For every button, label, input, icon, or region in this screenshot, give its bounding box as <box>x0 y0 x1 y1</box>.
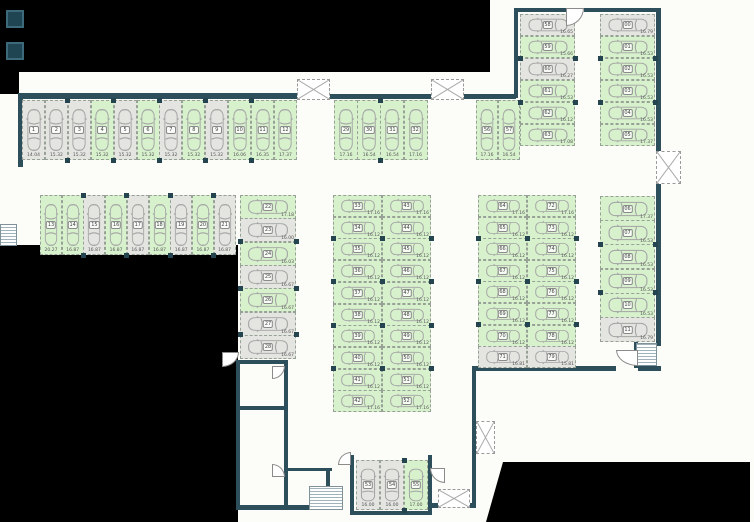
stall-dimension: 16.54 <box>358 153 380 158</box>
stall-number: 13 <box>46 221 56 229</box>
stall-dimension: 16.06 <box>229 153 250 158</box>
parking-stall-74[interactable]: 7416.12 <box>527 238 576 260</box>
ventilation-shaft-icon <box>431 79 464 100</box>
parking-stall-65[interactable]: 6516.12 <box>478 217 527 239</box>
stall-number: 52 <box>401 397 411 405</box>
stall-number: 3 <box>74 126 84 134</box>
column-marker <box>653 56 658 61</box>
parking-stall-49[interactable]: 4916.12 <box>382 325 431 347</box>
parking-stall-27[interactable]: 2716.67 <box>240 312 296 336</box>
column-marker <box>598 290 603 295</box>
stall-number: 75 <box>546 267 556 275</box>
parking-stall-01[interactable]: 0116.53 <box>600 36 655 58</box>
stall-number: 45 <box>401 245 411 253</box>
stall-dimension: 16.12 <box>416 298 429 303</box>
stall-number: 46 <box>401 267 411 275</box>
column-marker <box>203 158 208 163</box>
stall-number: 2 <box>51 126 61 134</box>
parking-stall-23[interactable]: 2316.00 <box>240 218 296 242</box>
parking-stall-08[interactable]: 0816.53 <box>600 244 655 269</box>
stall-number: 07 <box>622 229 632 237</box>
stall-dimension: 16.12 <box>561 341 574 346</box>
column-marker <box>380 279 385 284</box>
parking-stall-52[interactable]: 5217.16 <box>382 390 431 412</box>
stall-number: 43 <box>401 202 411 210</box>
parking-stall-25[interactable]: 2516.67 <box>240 265 296 289</box>
door-swing-icon <box>566 8 584 26</box>
parking-stall-07[interactable]: 0716.53 <box>600 220 655 245</box>
column-marker <box>157 98 162 103</box>
wall <box>584 8 661 12</box>
door-swing-icon <box>338 452 351 465</box>
stall-number: 67 <box>497 267 507 275</box>
stall-dimension: 17.16 <box>416 211 429 216</box>
parking-stall-71[interactable]: 7116.81 <box>478 346 527 368</box>
stall-dimension: 16.87 <box>63 248 83 253</box>
parking-stall-60[interactable]: 6016.27 <box>520 58 575 80</box>
stall-number: 62 <box>542 109 552 117</box>
wall <box>236 360 240 510</box>
stall-dimension: 16.53 <box>640 288 653 293</box>
column-marker <box>380 366 385 371</box>
stall-number: 56 <box>482 126 492 134</box>
stall-number: 35 <box>352 245 362 253</box>
stall-dimension: 15.32 <box>206 153 227 158</box>
stall-dimension: 15.32 <box>69 153 90 158</box>
stall-dimension: 17.37 <box>640 140 653 145</box>
stall-number: 10 <box>234 126 244 134</box>
column-marker <box>168 253 173 258</box>
column-marker <box>294 332 299 337</box>
stall-number: 40 <box>352 354 362 362</box>
column-marker <box>402 458 407 463</box>
stall-dimension: 16.12 <box>512 319 525 324</box>
parking-stall-03[interactable]: 0316.53 <box>600 80 655 102</box>
stall-dimension: 15.32 <box>115 153 136 158</box>
parking-stall-50[interactable]: 5016.12 <box>382 347 431 369</box>
stall-number: 79 <box>546 353 556 361</box>
stall-number: 6 <box>143 126 153 134</box>
stall-dimension: 16.00 <box>357 503 379 508</box>
stall-dimension: 17.37 <box>275 153 296 158</box>
column-marker <box>111 158 116 163</box>
column-marker <box>238 286 243 291</box>
stall-number: 24 <box>263 250 273 258</box>
stall-dimension: 17.37 <box>640 215 653 220</box>
parking-stall-59[interactable]: 5915.66 <box>520 36 575 58</box>
parking-stall-61[interactable]: 6116.53 <box>520 80 575 102</box>
stall-dimension: 16.53 <box>640 263 653 268</box>
stall-dimension: 17.16 <box>335 153 357 158</box>
stall-number: 18 <box>154 221 164 229</box>
stall-number: 05 <box>622 131 632 139</box>
column-marker <box>653 290 658 295</box>
stall-number: 48 <box>401 311 411 319</box>
stall-number: 06 <box>622 205 632 213</box>
stall-number: 54 <box>387 481 397 489</box>
column-marker <box>598 100 603 105</box>
stall-dimension: 16.87 <box>84 248 104 253</box>
stairs-icon <box>0 224 17 246</box>
stall-number: 26 <box>263 296 273 304</box>
stall-number: 31 <box>387 126 397 134</box>
parking-stall-21[interactable]: 2116.87 <box>214 195 236 255</box>
parking-stall-67[interactable]: 6716.12 <box>478 260 527 282</box>
column-marker <box>168 193 173 198</box>
wall <box>514 8 566 12</box>
stall-number: 47 <box>401 289 411 297</box>
outside-area-mask <box>0 245 238 522</box>
parking-stall-35[interactable]: 3516.12 <box>333 238 382 260</box>
stall-dimension: 16.12 <box>416 320 429 325</box>
column-marker <box>598 56 603 61</box>
parking-stall-72[interactable]: 7217.16 <box>527 195 576 217</box>
parking-stall-41[interactable]: 4116.12 <box>333 369 382 391</box>
parking-stall-44[interactable]: 4416.12 <box>382 217 431 239</box>
stall-dimension: 16.12 <box>561 233 574 238</box>
wall <box>464 94 516 99</box>
stall-dimension: 16.87 <box>171 248 191 253</box>
parking-stall-62[interactable]: 6216.12 <box>520 102 575 124</box>
parking-stall-05[interactable]: 0517.37 <box>600 124 655 146</box>
column-marker <box>380 323 385 328</box>
wall <box>638 366 661 371</box>
parking-stall-39[interactable]: 3916.12 <box>333 325 382 347</box>
stall-dimension: 16.53 <box>640 239 653 244</box>
parking-stall-64[interactable]: 6417.16 <box>478 195 527 217</box>
stall-number: 12 <box>280 126 290 134</box>
column-marker <box>476 236 481 241</box>
stall-number: 9 <box>212 126 222 134</box>
stall-number: 14 <box>68 221 78 229</box>
stall-dimension: 16.67 <box>281 353 294 358</box>
stall-number: 69 <box>497 310 507 318</box>
stall-number: 60 <box>542 65 552 73</box>
column-marker <box>574 279 579 284</box>
stall-number: 5 <box>120 126 130 134</box>
column-marker <box>573 56 578 61</box>
outside-area-mask <box>486 462 750 522</box>
stall-dimension: 16.12 <box>367 233 380 238</box>
parking-stall-51[interactable]: 5116.12 <box>382 369 431 391</box>
column-marker <box>157 158 162 163</box>
stall-dimension: 16.12 <box>416 363 429 368</box>
stall-dimension: 17.16 <box>405 153 427 158</box>
stall-number: 53 <box>363 481 373 489</box>
parking-stall-48[interactable]: 4816.12 <box>382 304 431 326</box>
stall-number: 58 <box>542 21 552 29</box>
parking-stall-02[interactable]: 0216.53 <box>600 58 655 80</box>
parking-stall-10[interactable]: 1016.53 <box>600 293 655 318</box>
stall-dimension: 16.53 <box>640 96 653 101</box>
ventilation-shaft-icon <box>656 151 681 184</box>
column-marker <box>65 98 70 103</box>
column-marker <box>331 236 336 241</box>
stall-dimension: 16.12 <box>416 276 429 281</box>
stall-dimension: 16.12 <box>367 341 380 346</box>
stall-number: 22 <box>263 203 273 211</box>
parking-stall-79[interactable]: 7915.81 <box>527 346 576 368</box>
stall-number: 70 <box>497 332 507 340</box>
stall-number: 63 <box>542 131 552 139</box>
stall-number: 27 <box>263 320 273 328</box>
parking-stall-33[interactable]: 3317.16 <box>333 195 382 217</box>
stall-dimension: 16.12 <box>416 341 429 346</box>
stall-number: 59 <box>542 43 552 51</box>
parking-stall-77[interactable]: 7716.12 <box>527 303 576 325</box>
ventilation-shaft-icon <box>297 79 330 100</box>
parking-stall-42[interactable]: 4217.16 <box>333 390 382 412</box>
shaft-marker-icon <box>6 10 24 28</box>
stall-number: 76 <box>546 288 556 296</box>
stall-dimension: 16.12 <box>416 254 429 259</box>
column-marker <box>211 253 216 258</box>
stall-dimension: 16.12 <box>512 341 525 346</box>
stall-dimension: 16.87 <box>193 248 213 253</box>
stall-dimension: 15.32 <box>160 153 181 158</box>
stall-dimension: 16.67 <box>281 306 294 311</box>
parking-stall-04[interactable]: 0416.53 <box>600 102 655 124</box>
wall <box>236 406 288 410</box>
column-marker <box>653 242 658 247</box>
parking-stall-11[interactable]: 1116.79 <box>600 317 655 342</box>
stall-number: 39 <box>352 332 362 340</box>
stall-dimension: 16.54 <box>381 153 403 158</box>
parking-stall-28[interactable]: 2816.67 <box>240 335 296 359</box>
parking-stall-34[interactable]: 3416.12 <box>333 217 382 239</box>
stall-dimension: 16.12 <box>367 298 380 303</box>
stall-number: 65 <box>497 224 507 232</box>
column-marker <box>378 98 383 103</box>
parking-stall-32[interactable]: 3217.16 <box>404 100 428 160</box>
column-marker <box>111 98 116 103</box>
stall-number: 57 <box>504 126 514 134</box>
column-marker <box>653 100 658 105</box>
stall-number: 77 <box>546 310 556 318</box>
stall-number: 08 <box>622 253 632 261</box>
parking-stall-40[interactable]: 4016.12 <box>333 347 382 369</box>
parking-stall-12[interactable]: 1217.37 <box>274 100 297 160</box>
parking-stall-36[interactable]: 3616.12 <box>333 260 382 282</box>
stall-number: 55 <box>411 481 421 489</box>
stall-number: 49 <box>401 332 411 340</box>
stall-number: 30 <box>364 126 374 134</box>
stall-dimension: 17.16 <box>367 406 380 411</box>
stall-dimension: 16.12 <box>512 297 525 302</box>
stall-number: 71 <box>497 353 507 361</box>
stall-number: 42 <box>352 397 362 405</box>
stall-dimension: 16.12 <box>367 320 380 325</box>
wall <box>284 360 288 510</box>
stall-number: 15 <box>89 221 99 229</box>
stall-number: 04 <box>622 109 632 117</box>
stall-dimension: 16.79 <box>640 30 653 35</box>
stall-dimension: 16.54 <box>499 153 519 158</box>
stall-dimension: 16.00 <box>381 503 403 508</box>
parking-stall-68[interactable]: 6816.12 <box>478 281 527 303</box>
stall-number: 21 <box>219 221 229 229</box>
stall-dimension: 17.16 <box>367 211 380 216</box>
stairs-icon <box>309 486 343 510</box>
stall-dimension: 16.12 <box>512 233 525 238</box>
parking-stall-47[interactable]: 4716.12 <box>382 282 431 304</box>
column-marker <box>525 236 530 241</box>
parking-stall-57[interactable]: 5716.54 <box>498 100 520 160</box>
stall-number: 36 <box>352 267 362 275</box>
ventilation-shaft-icon <box>476 421 495 454</box>
parking-stall-75[interactable]: 7516.12 <box>527 260 576 282</box>
parking-stall-76[interactable]: 7616.12 <box>527 281 576 303</box>
parking-stall-66[interactable]: 6616.12 <box>478 238 527 260</box>
stall-dimension: 15.32 <box>92 153 113 158</box>
stall-dimension: 16.53 <box>640 118 653 123</box>
stall-dimension: 17.16 <box>477 153 497 158</box>
stall-dimension: 16.12 <box>367 254 380 259</box>
stall-number: 74 <box>546 245 556 253</box>
wall <box>656 8 661 154</box>
outside-area-mask <box>0 0 490 72</box>
stall-number: 33 <box>352 202 362 210</box>
door-swing-icon <box>616 350 638 366</box>
stall-number: 23 <box>263 226 273 234</box>
stall-dimension: 16.53 <box>560 96 573 101</box>
parking-stall-45[interactable]: 4516.12 <box>382 238 431 260</box>
column-marker <box>331 366 336 371</box>
stall-dimension: 16.67 <box>281 283 294 288</box>
parking-stall-37[interactable]: 3716.12 <box>333 282 382 304</box>
ventilation-shaft-icon <box>438 489 470 508</box>
stall-number: 8 <box>189 126 199 134</box>
stall-dimension: 16.67 <box>281 330 294 335</box>
stall-number: 28 <box>263 343 273 351</box>
stairs-icon <box>636 343 657 366</box>
column-marker <box>525 322 530 327</box>
column-marker <box>211 193 216 198</box>
stall-dimension: 16.12 <box>512 276 525 281</box>
stall-number: 38 <box>352 311 362 319</box>
parking-stall-06[interactable]: 0617.37 <box>600 196 655 221</box>
stall-dimension: 16.53 <box>640 312 653 317</box>
stall-dimension: 17.18 <box>281 213 294 218</box>
parking-stall-78[interactable]: 7816.12 <box>527 325 576 347</box>
stall-dimension: 16.12 <box>561 254 574 259</box>
stall-dimension: 16.53 <box>640 74 653 79</box>
stall-dimension: 14.04 <box>23 153 44 158</box>
stall-dimension: 16.12 <box>367 385 380 390</box>
parking-stall-24[interactable]: 2416.03 <box>240 242 296 266</box>
column-marker <box>124 253 129 258</box>
parking-stall-46[interactable]: 4616.12 <box>382 260 431 282</box>
stall-number: 25 <box>263 273 273 281</box>
stall-number: 7 <box>166 126 176 134</box>
stall-dimension: 16.12 <box>561 276 574 281</box>
parking-floor-plan: 114.04 215.32 315.32 415.32 515.32 615.3… <box>0 0 754 522</box>
stall-number: 19 <box>176 221 186 229</box>
stall-dimension: 16.65 <box>560 30 573 35</box>
stall-dimension: 16.79 <box>640 336 653 341</box>
stall-dimension: 15.66 <box>560 52 573 57</box>
column-marker <box>429 323 434 328</box>
parking-stall-69[interactable]: 6916.12 <box>478 303 527 325</box>
column-marker <box>476 279 481 284</box>
stall-number: 44 <box>401 224 411 232</box>
parking-stall-70[interactable]: 7016.12 <box>478 325 527 347</box>
column-marker <box>238 332 243 337</box>
stall-number: 17 <box>133 221 143 229</box>
wall <box>350 511 432 515</box>
column-marker <box>574 322 579 327</box>
stall-number: 50 <box>401 354 411 362</box>
column-marker <box>124 193 129 198</box>
stall-number: 20 <box>198 221 208 229</box>
stall-number: 37 <box>352 289 362 297</box>
stall-dimension: 16.12 <box>367 276 380 281</box>
parking-stall-09[interactable]: 0916.53 <box>600 269 655 294</box>
stall-number: 51 <box>401 376 411 384</box>
stall-number: 1 <box>29 126 39 134</box>
stall-dimension: 17.00 <box>405 503 427 508</box>
stall-dimension: 17.16 <box>561 211 574 216</box>
column-marker <box>518 100 523 105</box>
column-marker <box>518 56 523 61</box>
stall-dimension: 16.03 <box>281 260 294 265</box>
stall-dimension: 15.32 <box>183 153 204 158</box>
column-marker <box>203 98 208 103</box>
stall-dimension: 16.53 <box>640 52 653 57</box>
stall-number: 02 <box>622 65 632 73</box>
stall-number: 68 <box>497 288 507 296</box>
column-marker <box>249 98 254 103</box>
column-marker <box>65 158 70 163</box>
column-marker <box>294 239 299 244</box>
parking-stall-73[interactable]: 7316.12 <box>527 217 576 239</box>
stall-number: 11 <box>622 326 632 334</box>
shaft-marker-icon <box>6 42 24 60</box>
wall <box>236 360 288 364</box>
stall-dimension: 16.87 <box>150 248 170 253</box>
column-marker <box>574 236 579 241</box>
stall-number: 11 <box>257 126 267 134</box>
column-marker <box>331 323 336 328</box>
stall-dimension: 16.81 <box>512 362 525 367</box>
column-marker <box>378 158 383 163</box>
stall-number: 03 <box>622 87 632 95</box>
stall-dimension: 16.12 <box>416 233 429 238</box>
parking-stall-26[interactable]: 2616.67 <box>240 288 296 312</box>
column-marker <box>249 158 254 163</box>
stall-number: 34 <box>352 224 362 232</box>
column-marker <box>476 322 481 327</box>
column-marker <box>81 193 86 198</box>
parking-stall-43[interactable]: 4317.16 <box>382 195 431 217</box>
parking-stall-63[interactable]: 6317.08 <box>520 124 575 146</box>
stall-dimension: 16.12 <box>560 118 573 123</box>
stall-dimension: 17.16 <box>512 211 525 216</box>
parking-stall-38[interactable]: 3816.12 <box>333 304 382 326</box>
stall-dimension: 16.87 <box>128 248 148 253</box>
stall-dimension: 16.00 <box>281 236 294 241</box>
parking-stall-22[interactable]: 2217.18 <box>240 195 296 219</box>
stall-dimension: 17.16 <box>416 406 429 411</box>
parking-stall-55[interactable]: 5517.00 <box>404 460 428 510</box>
stall-number: 73 <box>546 224 556 232</box>
stall-dimension: 16.35 <box>252 153 273 158</box>
stall-dimension: 16.12 <box>416 385 429 390</box>
parking-stall-00[interactable]: 0016.79 <box>600 14 655 36</box>
stall-number: 10 <box>622 301 632 309</box>
stall-number: 4 <box>97 126 107 134</box>
column-marker <box>294 286 299 291</box>
